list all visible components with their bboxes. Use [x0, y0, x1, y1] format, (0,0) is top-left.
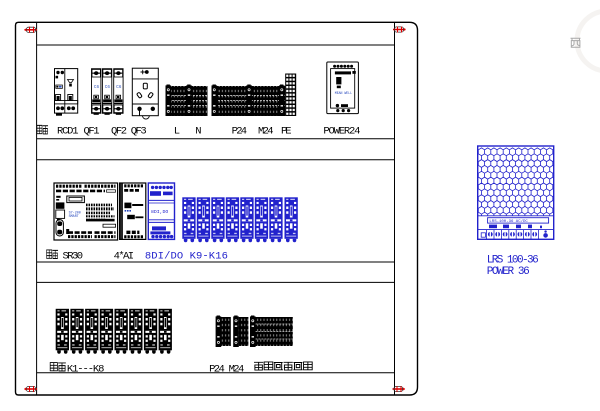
svg-text:POWER 36: POWER 36	[487, 266, 530, 278]
svg-text:SMART: SMART	[69, 215, 79, 219]
svg-text:P24: P24	[232, 126, 248, 138]
svg-text:POWER24: POWER24	[323, 126, 360, 138]
svg-text:RCD1: RCD1	[57, 126, 79, 138]
svg-text:P24: P24	[209, 364, 225, 376]
svg-text:4*AI: 4*AI	[114, 250, 135, 262]
svg-text:M24: M24	[229, 364, 245, 376]
svg-text:LRS-100-36 AC/DC: LRS-100-36 AC/DC	[489, 219, 528, 224]
svg-text:L: L	[174, 126, 180, 138]
svg-text:8DI/DO K9-K16: 8DI/DO K9-K16	[145, 250, 228, 262]
svg-text:K1---K8: K1---K8	[67, 364, 105, 376]
svg-text:LRS 100-36: LRS 100-36	[487, 254, 539, 266]
svg-text:SR30: SR30	[63, 250, 84, 262]
svg-text:M24: M24	[258, 126, 274, 138]
svg-text:N: N	[195, 126, 201, 138]
svg-text:QF3: QF3	[131, 126, 147, 138]
svg-text:8DI,DO: 8DI,DO	[151, 209, 168, 215]
svg-text:QF1: QF1	[84, 126, 100, 138]
svg-text:PE: PE	[281, 126, 292, 138]
svg-text:QF2: QF2	[111, 126, 127, 138]
svg-text:MEAN WELL: MEAN WELL	[335, 91, 352, 95]
